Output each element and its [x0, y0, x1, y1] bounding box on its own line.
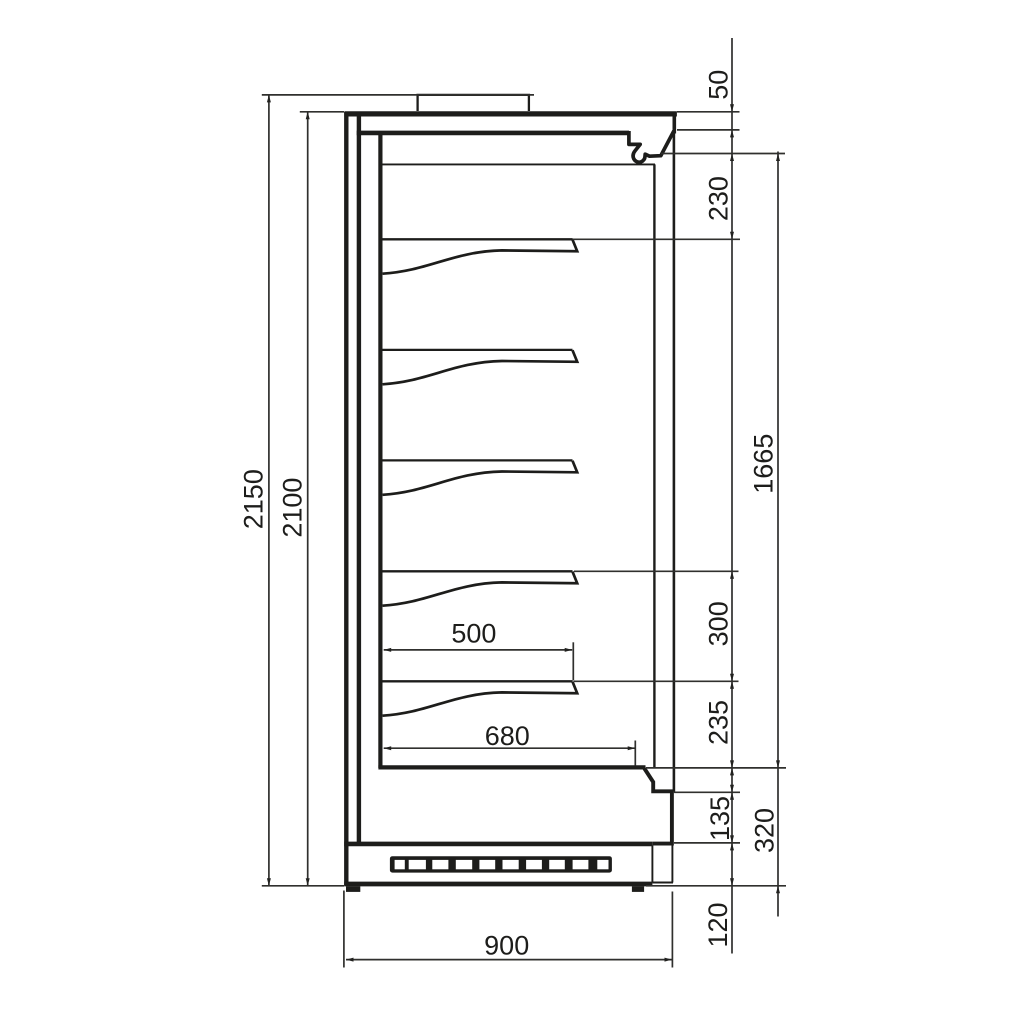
- svg-text:500: 500: [451, 619, 496, 649]
- svg-text:235: 235: [704, 700, 734, 745]
- svg-text:300: 300: [704, 601, 734, 646]
- svg-text:1665: 1665: [749, 434, 779, 494]
- svg-text:900: 900: [484, 931, 529, 961]
- svg-text:320: 320: [750, 808, 780, 853]
- svg-text:135: 135: [705, 796, 735, 841]
- svg-text:2100: 2100: [278, 478, 308, 538]
- svg-text:50: 50: [704, 70, 734, 100]
- svg-text:2150: 2150: [239, 469, 269, 529]
- svg-text:230: 230: [704, 176, 734, 221]
- svg-text:120: 120: [703, 902, 733, 947]
- svg-text:680: 680: [485, 721, 530, 751]
